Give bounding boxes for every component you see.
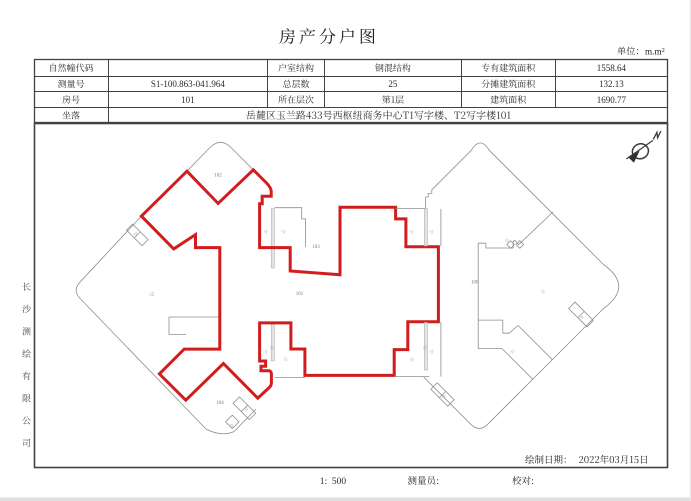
svg-text:1558.64: 1558.64 bbox=[597, 63, 627, 73]
svg-text:1: 500: 1: 500 bbox=[320, 477, 347, 487]
svg-text:103: 103 bbox=[312, 245, 320, 250]
svg-text:104: 104 bbox=[216, 401, 224, 406]
svg-text:1690.77: 1690.77 bbox=[597, 95, 627, 105]
svg-text:102: 102 bbox=[214, 173, 222, 178]
svg-text:S1-100.863-041.964: S1-100.863-041.964 bbox=[151, 79, 225, 89]
svg-text:25: 25 bbox=[388, 79, 398, 89]
svg-text:m.m2: m.m2 bbox=[645, 46, 665, 56]
svg-text:101: 101 bbox=[181, 95, 195, 105]
svg-text:100: 100 bbox=[471, 280, 479, 285]
svg-text:101: 101 bbox=[296, 292, 304, 297]
svg-text:132.13: 132.13 bbox=[599, 79, 624, 89]
